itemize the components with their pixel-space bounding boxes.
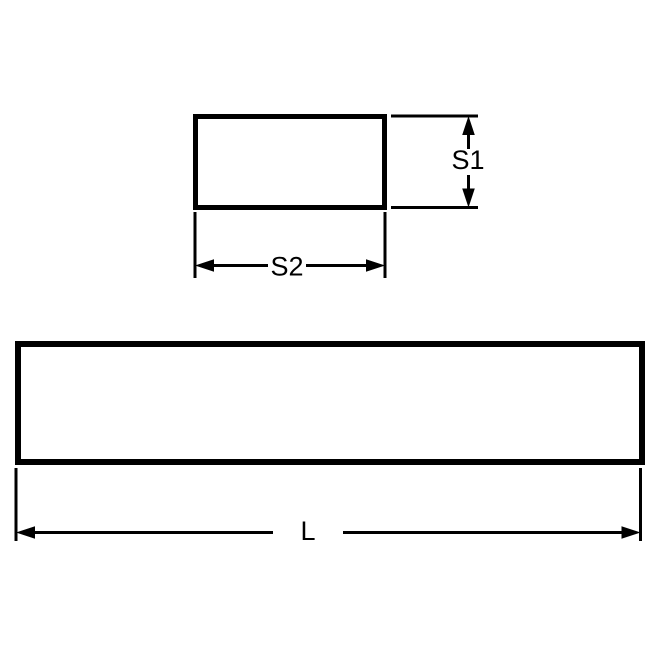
s1-dimension: S1 [391,116,485,208]
cross-section-rectangle [196,117,385,208]
s2-arrow-left-icon [195,259,214,272]
s2-dimension: S2 [195,212,385,282]
keystock-dimension-diagram: S1 S2 L [0,0,670,670]
length-label: L [300,516,315,546]
s2-label: S2 [270,252,303,282]
s1-arrow-down-icon [462,189,475,208]
length-arrow-right-icon [622,526,641,539]
length-arrow-left-icon [16,526,35,539]
length-dimension: L [16,468,641,546]
side-view-rectangle [18,344,642,462]
s1-label: S1 [451,145,484,175]
technical-drawing-canvas: S1 S2 L [0,0,670,670]
s2-arrow-right-icon [366,259,385,272]
s1-arrow-up-icon [462,116,475,135]
